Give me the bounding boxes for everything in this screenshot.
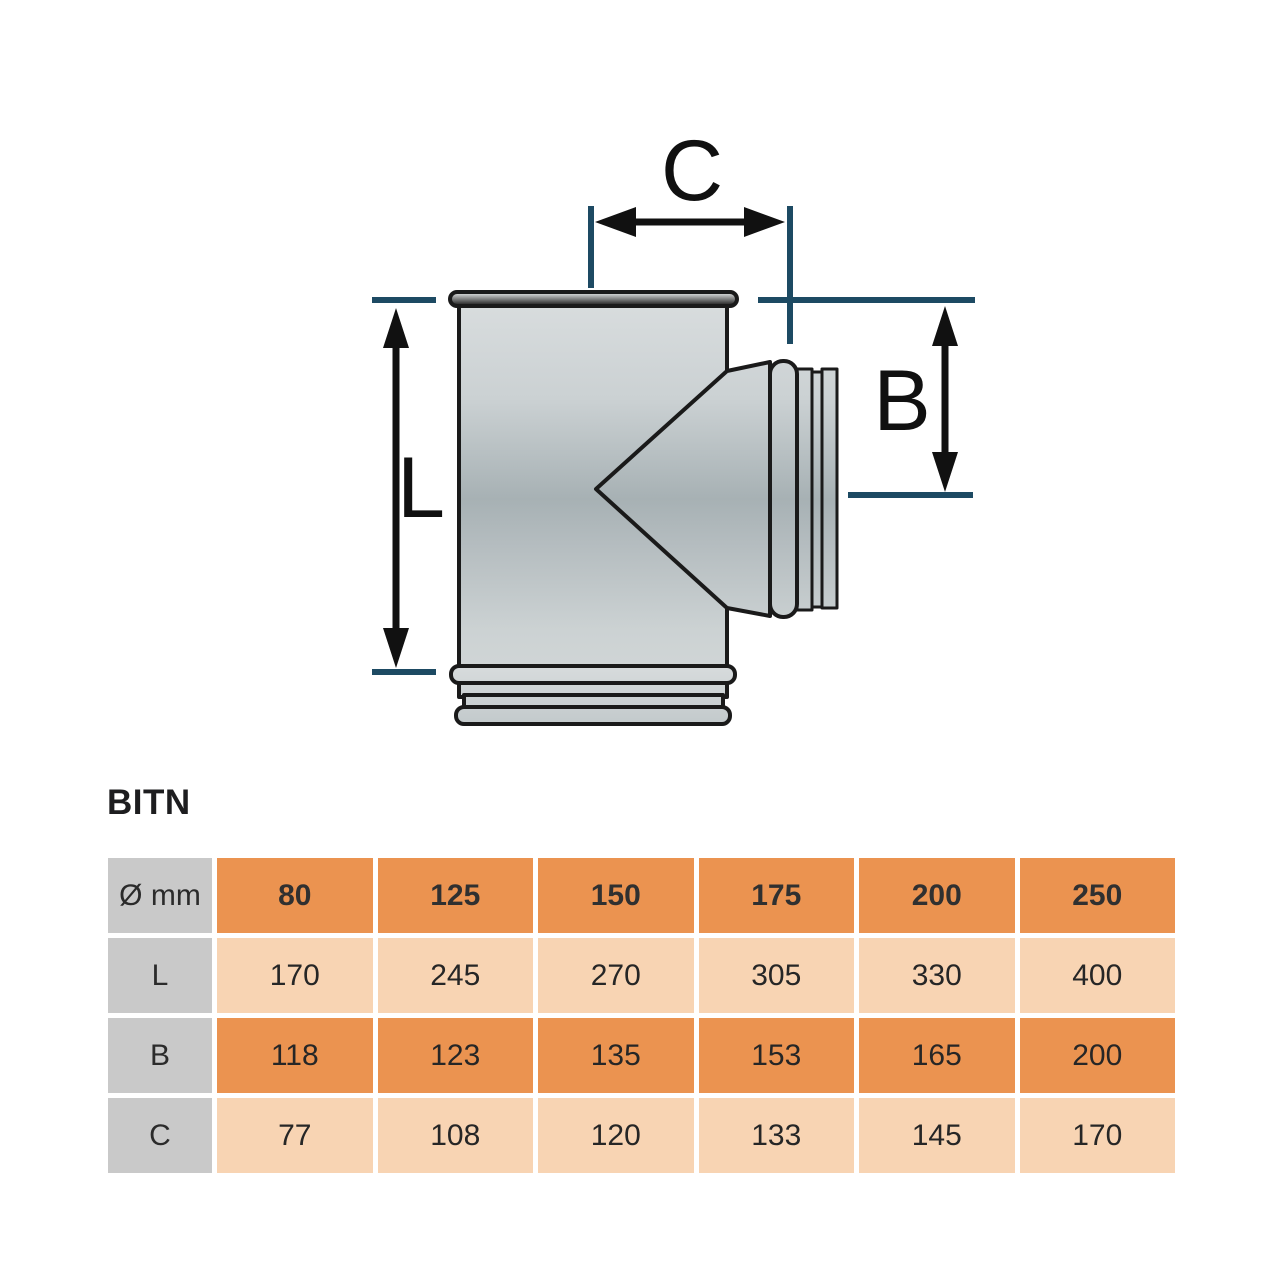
value-cell: 305	[699, 938, 855, 1013]
value-cell: 120	[538, 1098, 694, 1173]
diameter-header-cell: 125	[378, 858, 534, 933]
c-arrowhead-right	[744, 207, 785, 237]
dim-label-b: B	[873, 353, 930, 449]
value-cell: 145	[859, 1098, 1015, 1173]
row-label-cell: C	[108, 1098, 212, 1173]
value-cell: 133	[699, 1098, 855, 1173]
value-cell: 123	[378, 1018, 534, 1093]
l-arrowhead-bottom	[383, 628, 409, 668]
branch-bead-ring	[770, 361, 797, 617]
diameter-header-cell: 175	[699, 858, 855, 933]
value-cell: 400	[1020, 938, 1176, 1013]
value-cell: 270	[538, 938, 694, 1013]
value-cell: 170	[1020, 1098, 1176, 1173]
b-arrowhead-bottom	[932, 452, 958, 492]
spec-table: Ø mm 80 125 150 175 200 250 L 170 245 27…	[108, 858, 1175, 1173]
tee-fitting-svg: C B L	[0, 0, 1280, 780]
pipe-body-group	[450, 292, 837, 724]
dim-label-c: C	[661, 123, 723, 219]
diameter-header-cell: 250	[1020, 858, 1176, 933]
table-corner-cell: Ø mm	[108, 858, 212, 933]
l-arrowhead-top	[383, 308, 409, 348]
value-cell: 200	[1020, 1018, 1176, 1093]
value-cell: 245	[378, 938, 534, 1013]
branch-ring-end	[822, 369, 837, 608]
pipe-top-rim	[450, 292, 737, 306]
row-label-cell: B	[108, 1018, 212, 1093]
product-title: BITN	[107, 783, 191, 823]
diameter-header-cell: 80	[217, 858, 373, 933]
tee-fitting-diagram: C B L	[0, 0, 1280, 780]
value-cell: 118	[217, 1018, 373, 1093]
row-label-cell: L	[108, 938, 212, 1013]
branch-ring-2	[797, 369, 812, 610]
value-cell: 153	[699, 1018, 855, 1093]
value-cell: 330	[859, 938, 1015, 1013]
c-arrowhead-left	[595, 207, 636, 237]
diameter-header-cell: 200	[859, 858, 1015, 933]
value-cell: 77	[217, 1098, 373, 1173]
diameter-header-cell: 150	[538, 858, 694, 933]
value-cell: 170	[217, 938, 373, 1013]
pipe-bottom-bead-lower	[456, 707, 730, 724]
pipe-bottom-bead-upper	[451, 666, 735, 683]
b-arrowhead-top	[932, 306, 958, 346]
value-cell: 135	[538, 1018, 694, 1093]
value-cell: 108	[378, 1098, 534, 1173]
value-cell: 165	[859, 1018, 1015, 1093]
dim-label-l: L	[397, 440, 445, 536]
